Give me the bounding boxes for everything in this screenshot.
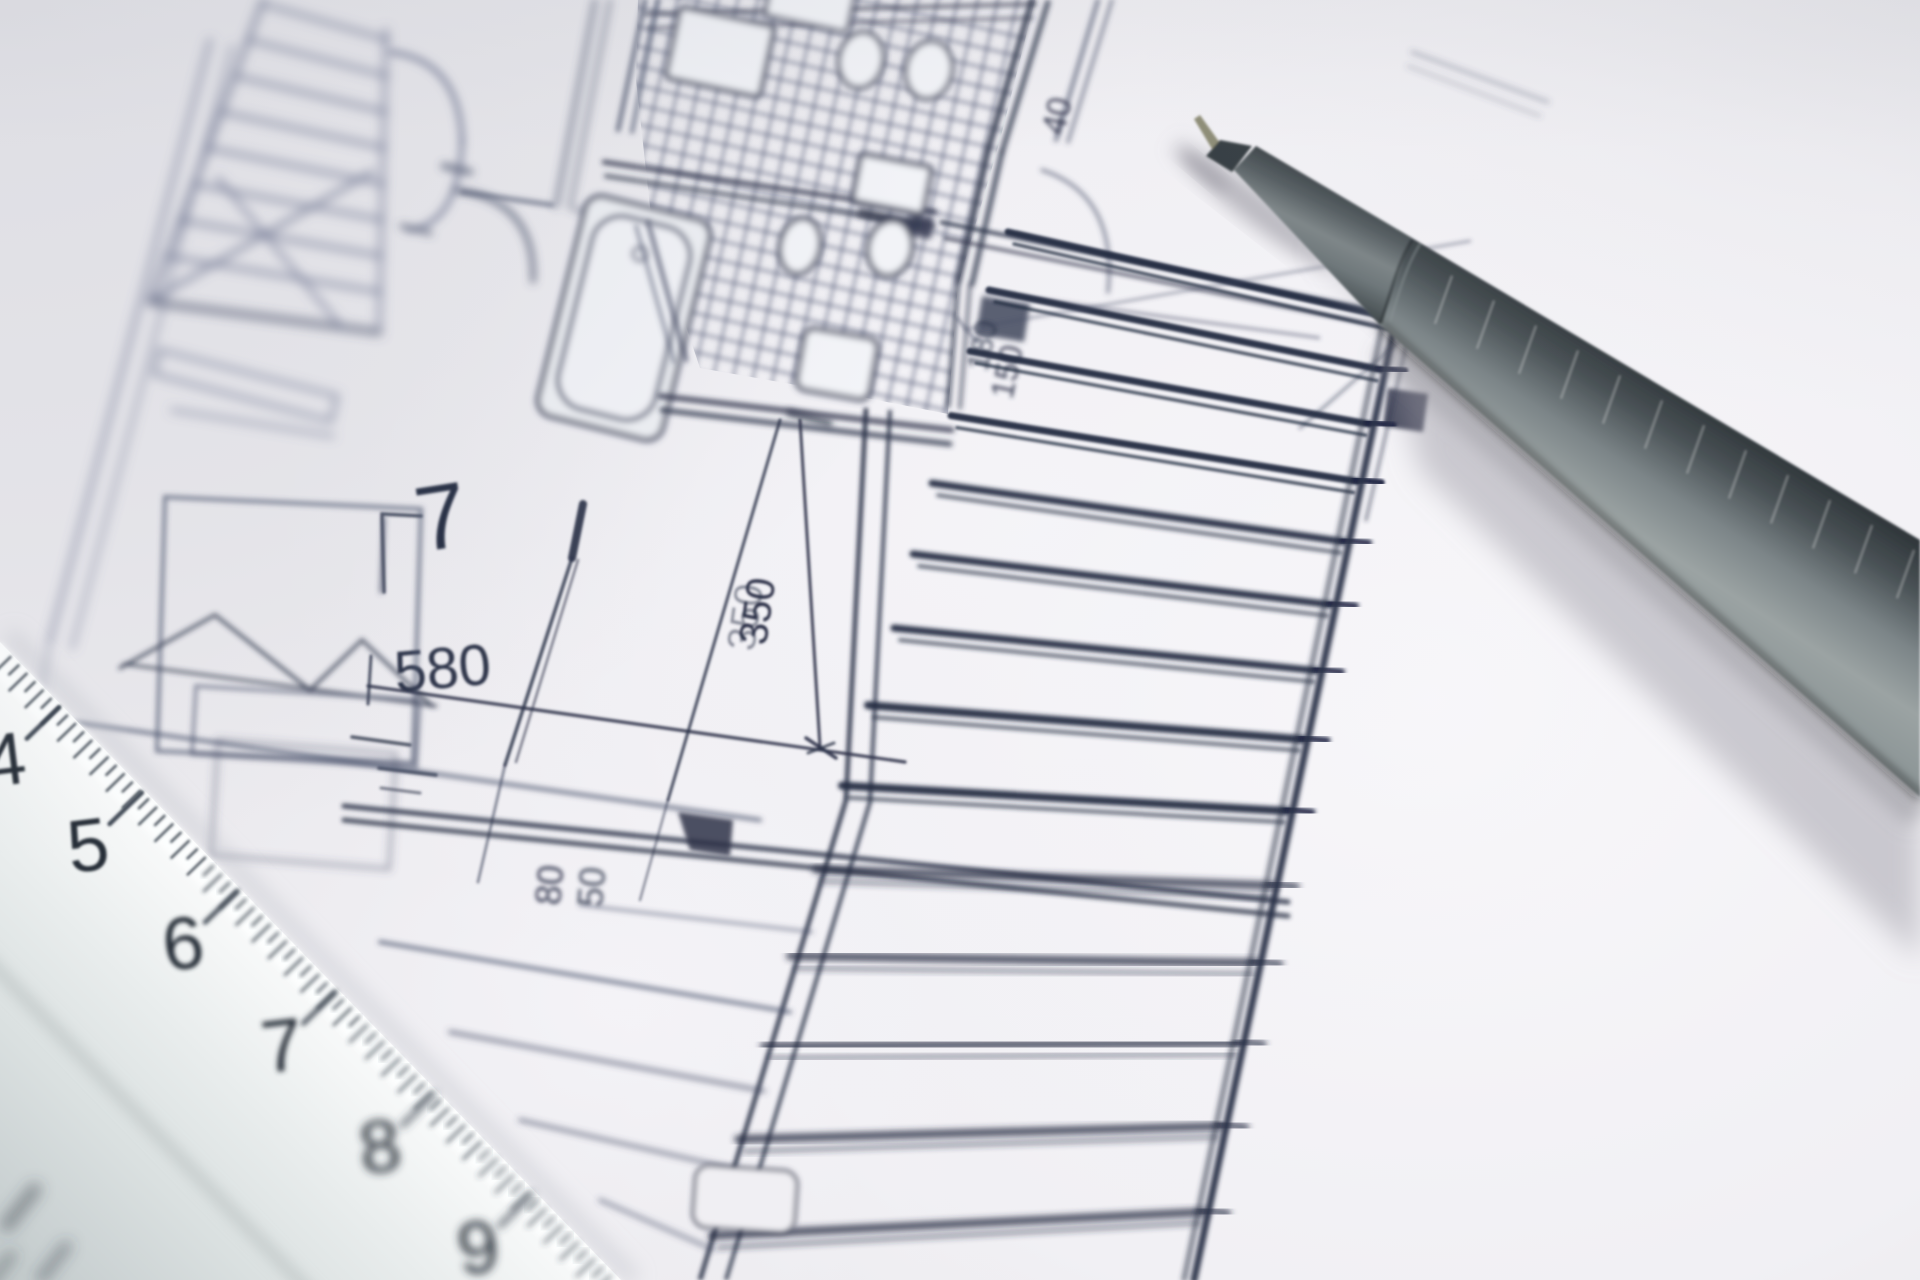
svg-text:50: 50 [569, 865, 613, 908]
svg-text:80: 80 [527, 863, 571, 906]
